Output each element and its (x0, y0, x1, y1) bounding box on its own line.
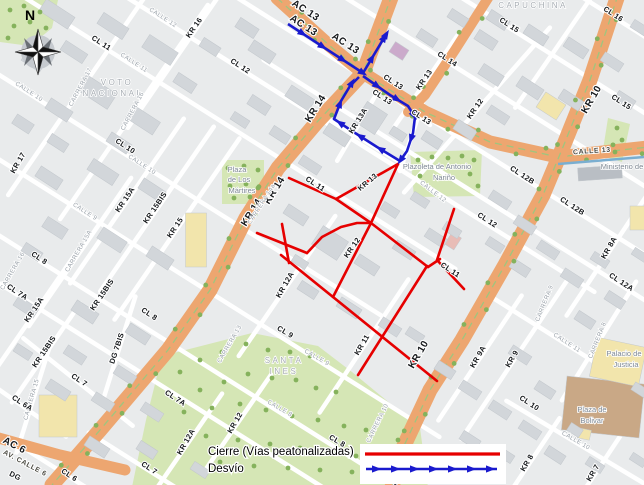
tree (457, 30, 462, 35)
tree (476, 184, 481, 189)
tree (555, 142, 560, 147)
poi-building-yellow (186, 213, 207, 267)
tree (256, 186, 261, 191)
tree (246, 372, 251, 377)
tree (256, 168, 261, 173)
tree (6, 36, 11, 41)
tree (248, 195, 253, 200)
tree (446, 156, 451, 161)
tree (613, 150, 618, 155)
tree (173, 327, 178, 332)
tree (232, 196, 237, 201)
tree (210, 406, 215, 411)
tree (266, 348, 271, 353)
map-label: de Los (228, 175, 251, 184)
tree (342, 424, 347, 429)
tree (314, 386, 319, 391)
map-label: Mártires (228, 186, 255, 195)
tree (153, 371, 158, 376)
map-label: Ministerio de (601, 162, 644, 171)
tree (512, 259, 517, 264)
tree (446, 127, 451, 132)
tree (514, 151, 519, 156)
city-map: CALLE 12CL 11KR 16CALLE 11VOTONACIONALCA… (0, 0, 644, 485)
tree (575, 124, 580, 129)
tree (534, 217, 539, 222)
tree (178, 370, 183, 375)
tree (462, 322, 467, 327)
tree (264, 408, 269, 413)
poi-building-yellow (39, 395, 77, 437)
tree (480, 16, 485, 21)
tree (238, 402, 243, 407)
tree (620, 138, 625, 143)
map-label: Palacio de (606, 349, 641, 358)
map-label: SANTA (265, 356, 304, 365)
tree (294, 378, 299, 383)
tree (354, 454, 359, 459)
tree (544, 146, 549, 151)
tree (364, 428, 369, 433)
tree (402, 429, 407, 434)
map-label: Plazoleta de Antonio (403, 162, 471, 171)
map-label: Plaza de (577, 405, 606, 414)
tree (198, 388, 203, 393)
tree (595, 36, 600, 41)
tree (512, 232, 517, 237)
map-label: INES (270, 367, 299, 376)
tree (444, 71, 449, 76)
tree (94, 423, 99, 428)
tree (485, 280, 490, 285)
tree (611, 142, 616, 147)
tree (316, 418, 321, 423)
tree (44, 26, 49, 31)
tree (452, 361, 457, 366)
tree (204, 434, 209, 439)
tree (288, 350, 293, 355)
tree (472, 158, 477, 163)
tree (411, 95, 416, 100)
tree (484, 307, 489, 312)
tree (226, 265, 231, 270)
tree (127, 383, 132, 388)
map-label: Nariño (433, 173, 455, 182)
tree (222, 380, 227, 385)
tree (350, 470, 355, 475)
tree (476, 128, 481, 133)
tree (599, 63, 604, 68)
tree (366, 39, 371, 44)
map-label: Bolivar (581, 416, 604, 425)
tree (12, 24, 17, 29)
tree (468, 172, 473, 177)
tree (537, 187, 542, 192)
tree (59, 463, 64, 468)
map-label: Plaza (228, 165, 248, 174)
tree (227, 236, 232, 241)
legend-detour-label: Desvío (208, 463, 244, 475)
tree (460, 154, 465, 159)
map-label: Justicia (613, 360, 639, 369)
tree (430, 155, 435, 160)
tree (338, 85, 343, 90)
map-label: NACIONAL (83, 89, 144, 98)
tree (353, 57, 358, 62)
tree (318, 468, 323, 473)
compass-north-label: N (25, 7, 35, 23)
tree (557, 169, 562, 174)
tree (198, 312, 203, 317)
legend-symbols-panel (360, 444, 506, 484)
tree (236, 438, 241, 443)
tree (334, 390, 339, 395)
legend-closure-label: Cierre (Vías peatonalizadas) (208, 446, 354, 458)
tree (368, 68, 373, 73)
map-label: CAPUCHINA (498, 1, 568, 10)
tree (396, 438, 401, 443)
tree (270, 376, 275, 381)
tree (252, 464, 257, 469)
tree (286, 163, 291, 168)
map-viewport: CALLE 12CL 11KR 16CALLE 11VOTONACIONALCA… (0, 0, 644, 485)
tree (423, 412, 428, 417)
tree (182, 410, 187, 415)
tree (198, 358, 203, 363)
tree (615, 126, 620, 131)
tree (120, 411, 125, 416)
tree (38, 10, 43, 15)
tree (386, 19, 391, 24)
tree (244, 342, 249, 347)
tree (203, 283, 208, 288)
tree (85, 451, 90, 456)
tree (329, 113, 334, 118)
poi-building-yellow (630, 206, 644, 230)
map-label: VOTO (101, 78, 134, 87)
tree (418, 174, 423, 179)
tree (293, 136, 298, 141)
tree (8, 8, 13, 13)
tree (573, 98, 578, 103)
tree (286, 466, 291, 471)
